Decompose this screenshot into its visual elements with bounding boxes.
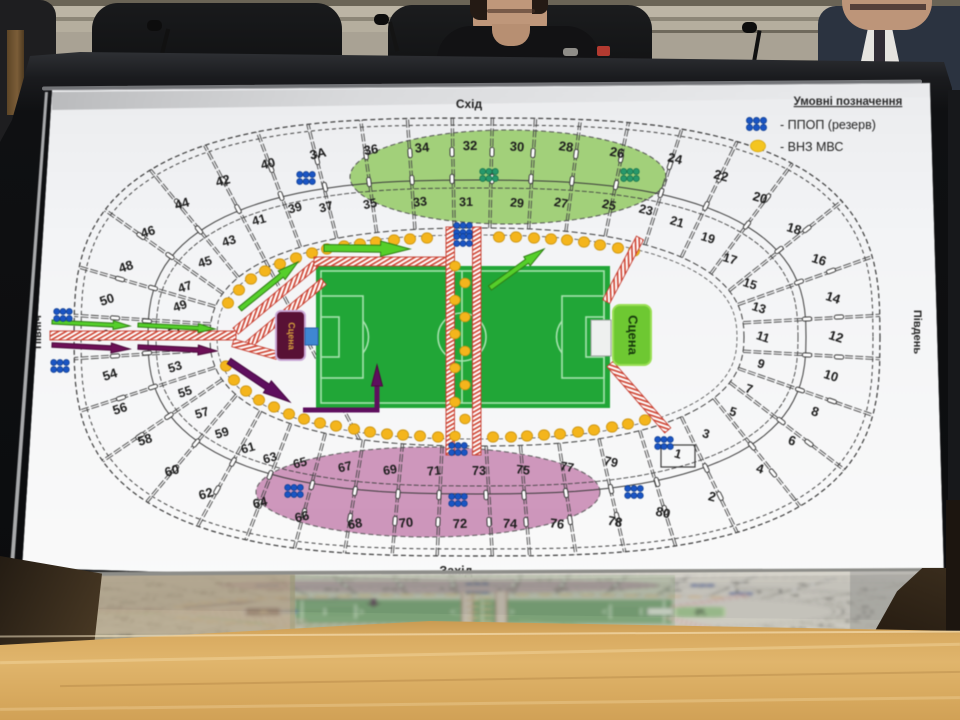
svg-text:33: 33 xyxy=(412,194,428,210)
svg-text:28: 28 xyxy=(558,138,574,155)
svg-text:78: 78 xyxy=(607,513,624,530)
svg-text:72: 72 xyxy=(452,516,467,531)
svg-text:27: 27 xyxy=(553,195,569,211)
svg-text:30: 30 xyxy=(509,139,524,155)
svg-text:76: 76 xyxy=(549,515,565,532)
svg-text:29: 29 xyxy=(509,195,524,210)
svg-text:73: 73 xyxy=(472,464,486,478)
svg-text:Сцена: Сцена xyxy=(626,315,641,355)
svg-text:Південь: Південь xyxy=(911,310,923,354)
svg-text:74: 74 xyxy=(502,516,518,532)
svg-text:32: 32 xyxy=(463,138,478,153)
svg-text:26: 26 xyxy=(609,144,626,161)
svg-text:71: 71 xyxy=(426,463,441,478)
svg-text:35: 35 xyxy=(362,196,378,212)
svg-text:- ППОП (резерв): - ППОП (резерв) xyxy=(780,118,876,132)
svg-text:77: 77 xyxy=(559,459,575,475)
svg-text:31: 31 xyxy=(459,195,473,209)
svg-text:68: 68 xyxy=(346,515,363,532)
svg-text:- ВНЗ МВС: - ВНЗ МВС xyxy=(780,140,843,154)
svg-text:34: 34 xyxy=(414,139,430,155)
svg-text:Північ: Північ xyxy=(32,315,44,349)
svg-text:69: 69 xyxy=(382,462,398,478)
svg-text:Схід: Схід xyxy=(456,97,483,111)
svg-text:Умовні позначення: Умовні позначення xyxy=(794,96,903,108)
svg-text:Сцена: Сцена xyxy=(287,322,297,350)
svg-text:36: 36 xyxy=(363,141,380,158)
svg-text:75: 75 xyxy=(515,462,530,477)
svg-text:70: 70 xyxy=(398,514,414,530)
